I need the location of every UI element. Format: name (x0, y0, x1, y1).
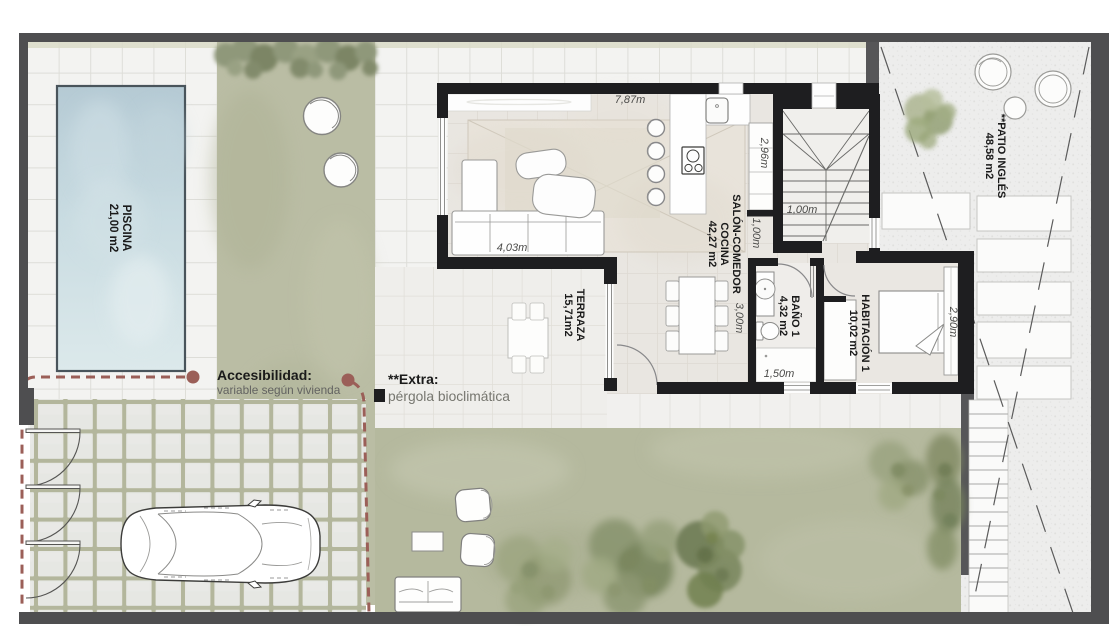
svg-text:2,96m: 2,96m (758, 137, 770, 169)
svg-text:3,00m: 3,00m (733, 303, 745, 334)
svg-text:**PATIO INGLÉS: **PATIO INGLÉS (995, 114, 1008, 199)
svg-text:HABITACIÓN 1: HABITACIÓN 1 (859, 294, 872, 371)
svg-text:**Extra:: **Extra: (388, 371, 439, 387)
svg-text:15,71m2: 15,71m2 (562, 293, 574, 336)
svg-text:Accesibilidad:: Accesibilidad: (217, 367, 312, 383)
svg-text:1,00m: 1,00m (787, 204, 818, 216)
svg-text:21,00 m2: 21,00 m2 (107, 204, 119, 253)
svg-text:BAÑO 1: BAÑO 1 (789, 295, 802, 337)
svg-text:2,90m: 2,90m (947, 306, 959, 338)
svg-text:1,50m: 1,50m (764, 368, 795, 380)
svg-text:10,02 m2: 10,02 m2 (847, 310, 859, 356)
svg-text:1,00m: 1,00m (750, 218, 762, 249)
svg-text:variable según vivienda: variable según vivienda (217, 383, 341, 397)
svg-text:TERRAZA: TERRAZA (574, 289, 586, 342)
svg-text:SALÓN-COMEDOR: SALÓN-COMEDOR (730, 194, 743, 294)
svg-text:42,27 m2: 42,27 m2 (706, 221, 718, 267)
svg-text:PISCINA: PISCINA (120, 205, 132, 252)
svg-text:COCINA: COCINA (718, 222, 730, 265)
svg-text:pérgola bioclimática: pérgola bioclimática (388, 389, 510, 404)
svg-text:4,03m: 4,03m (497, 242, 528, 254)
svg-text:7,87m: 7,87m (615, 94, 646, 106)
svg-text:4,32 m2: 4,32 m2 (777, 296, 789, 336)
svg-text:48,58 m2: 48,58 m2 (983, 133, 995, 179)
